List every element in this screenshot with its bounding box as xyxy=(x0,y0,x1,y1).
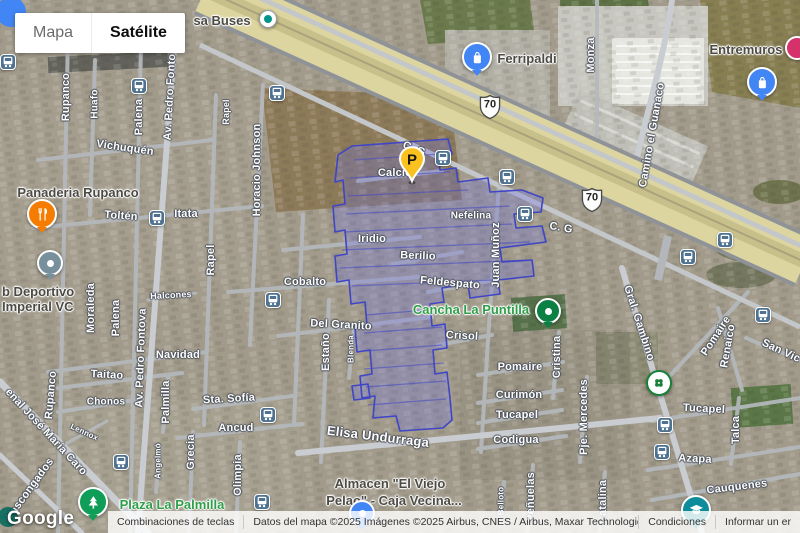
satellite-imagery xyxy=(0,0,800,533)
map-view-button[interactable]: Mapa xyxy=(15,13,91,53)
keyboard-shortcuts-button[interactable]: Combinaciones de teclas xyxy=(108,516,243,528)
satellite-view-button[interactable]: Satélite xyxy=(91,13,185,53)
terms-link[interactable]: Condiciones xyxy=(639,516,715,528)
report-error-link[interactable]: Informar un er xyxy=(716,516,800,528)
map-canvas[interactable]: VichuquénTolténItataRupancoHuafoPalenaAv… xyxy=(0,0,800,533)
map-type-toggle: Mapa Satélite xyxy=(15,13,185,53)
google-logo: Google xyxy=(7,508,74,530)
attribution-bar: Combinaciones de teclas Datos del mapa ©… xyxy=(108,511,800,533)
map-data-credit: Datos del mapa ©2025 Imágenes ©2025 Airb… xyxy=(244,516,638,528)
